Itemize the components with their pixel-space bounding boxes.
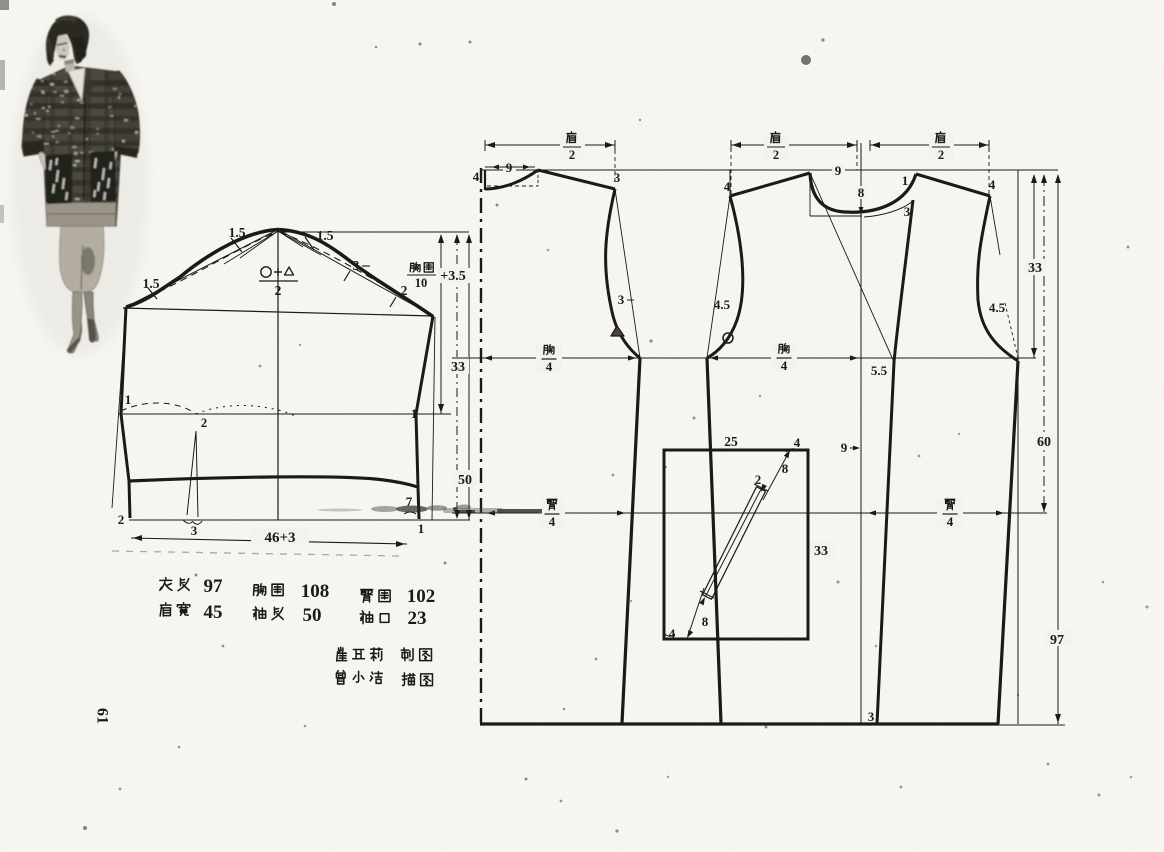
svg-text:61: 61 — [94, 708, 111, 724]
svg-text:2: 2 — [201, 415, 208, 430]
svg-text:1.5: 1.5 — [317, 228, 334, 243]
svg-text:3: 3 — [614, 170, 621, 185]
svg-text:3: 3 — [191, 523, 198, 538]
svg-text:4.5: 4.5 — [714, 297, 731, 312]
svg-text:4: 4 — [549, 514, 556, 529]
svg-text:3: 3 — [618, 292, 625, 307]
svg-text:2: 2 — [569, 148, 575, 162]
svg-text:4: 4 — [989, 177, 996, 192]
svg-text:8: 8 — [702, 614, 709, 629]
svg-text:2: 2 — [401, 283, 408, 298]
svg-text:4: 4 — [473, 169, 480, 184]
svg-text:1: 1 — [418, 521, 425, 536]
svg-text:9: 9 — [841, 440, 848, 455]
svg-text:10: 10 — [415, 276, 428, 290]
svg-text:45: 45 — [204, 602, 223, 623]
svg-text:33: 33 — [1028, 261, 1042, 276]
svg-text:2: 2 — [755, 472, 762, 487]
svg-text:1.5: 1.5 — [143, 276, 160, 291]
svg-text:46+3: 46+3 — [264, 530, 295, 546]
svg-text:1: 1 — [411, 406, 418, 421]
svg-text:8: 8 — [782, 461, 789, 476]
svg-text:1: 1 — [902, 173, 909, 188]
svg-text:4: 4 — [724, 179, 731, 194]
svg-text:4: 4 — [546, 359, 553, 374]
svg-text:4: 4 — [781, 358, 788, 373]
svg-text:+3.5: +3.5 — [440, 269, 465, 284]
svg-text:4: 4 — [669, 626, 676, 641]
svg-text:1.5: 1.5 — [229, 225, 246, 240]
svg-text:50: 50 — [458, 473, 472, 488]
svg-text:4: 4 — [794, 435, 801, 450]
svg-text:33: 33 — [451, 360, 465, 375]
svg-text:23: 23 — [408, 608, 427, 629]
svg-text:9: 9 — [835, 163, 842, 178]
svg-text:2: 2 — [773, 148, 779, 162]
svg-text:97: 97 — [1050, 633, 1064, 648]
svg-text:4: 4 — [947, 514, 954, 529]
svg-text:50: 50 — [303, 605, 322, 626]
svg-text:102: 102 — [407, 586, 436, 607]
svg-text:5.5: 5.5 — [871, 363, 888, 378]
svg-text:2: 2 — [938, 148, 944, 162]
svg-text:33: 33 — [814, 544, 828, 559]
svg-text:2: 2 — [118, 512, 125, 527]
svg-text:60: 60 — [1037, 435, 1051, 450]
svg-text:1: 1 — [125, 392, 132, 407]
svg-text:9: 9 — [506, 160, 513, 175]
svg-text:25: 25 — [724, 434, 738, 449]
svg-text:2: 2 — [275, 283, 282, 298]
svg-text:3: 3 — [353, 258, 360, 273]
svg-text:3: 3 — [868, 709, 875, 724]
svg-text:97: 97 — [204, 576, 224, 597]
svg-text:8: 8 — [858, 185, 865, 200]
svg-text:108: 108 — [301, 581, 330, 602]
svg-text:4.5: 4.5 — [989, 300, 1006, 315]
svg-text:3: 3 — [904, 204, 911, 219]
